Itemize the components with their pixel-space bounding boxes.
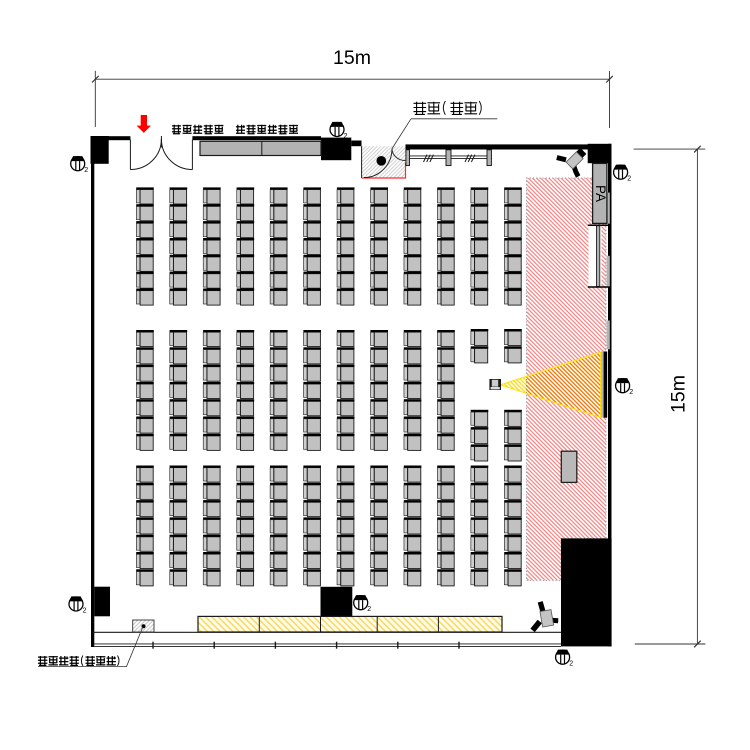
svg-text:2: 2: [83, 607, 87, 614]
svg-text:2: 2: [367, 606, 371, 613]
svg-text:15m: 15m: [668, 375, 690, 413]
svg-text:2: 2: [569, 661, 573, 668]
svg-text:2: 2: [627, 176, 631, 183]
svg-text:2: 2: [344, 133, 348, 140]
svg-text:2: 2: [84, 167, 88, 174]
svg-text:PA: PA: [593, 185, 608, 202]
svg-text:15m: 15m: [333, 47, 371, 69]
svg-text:2: 2: [629, 389, 633, 396]
